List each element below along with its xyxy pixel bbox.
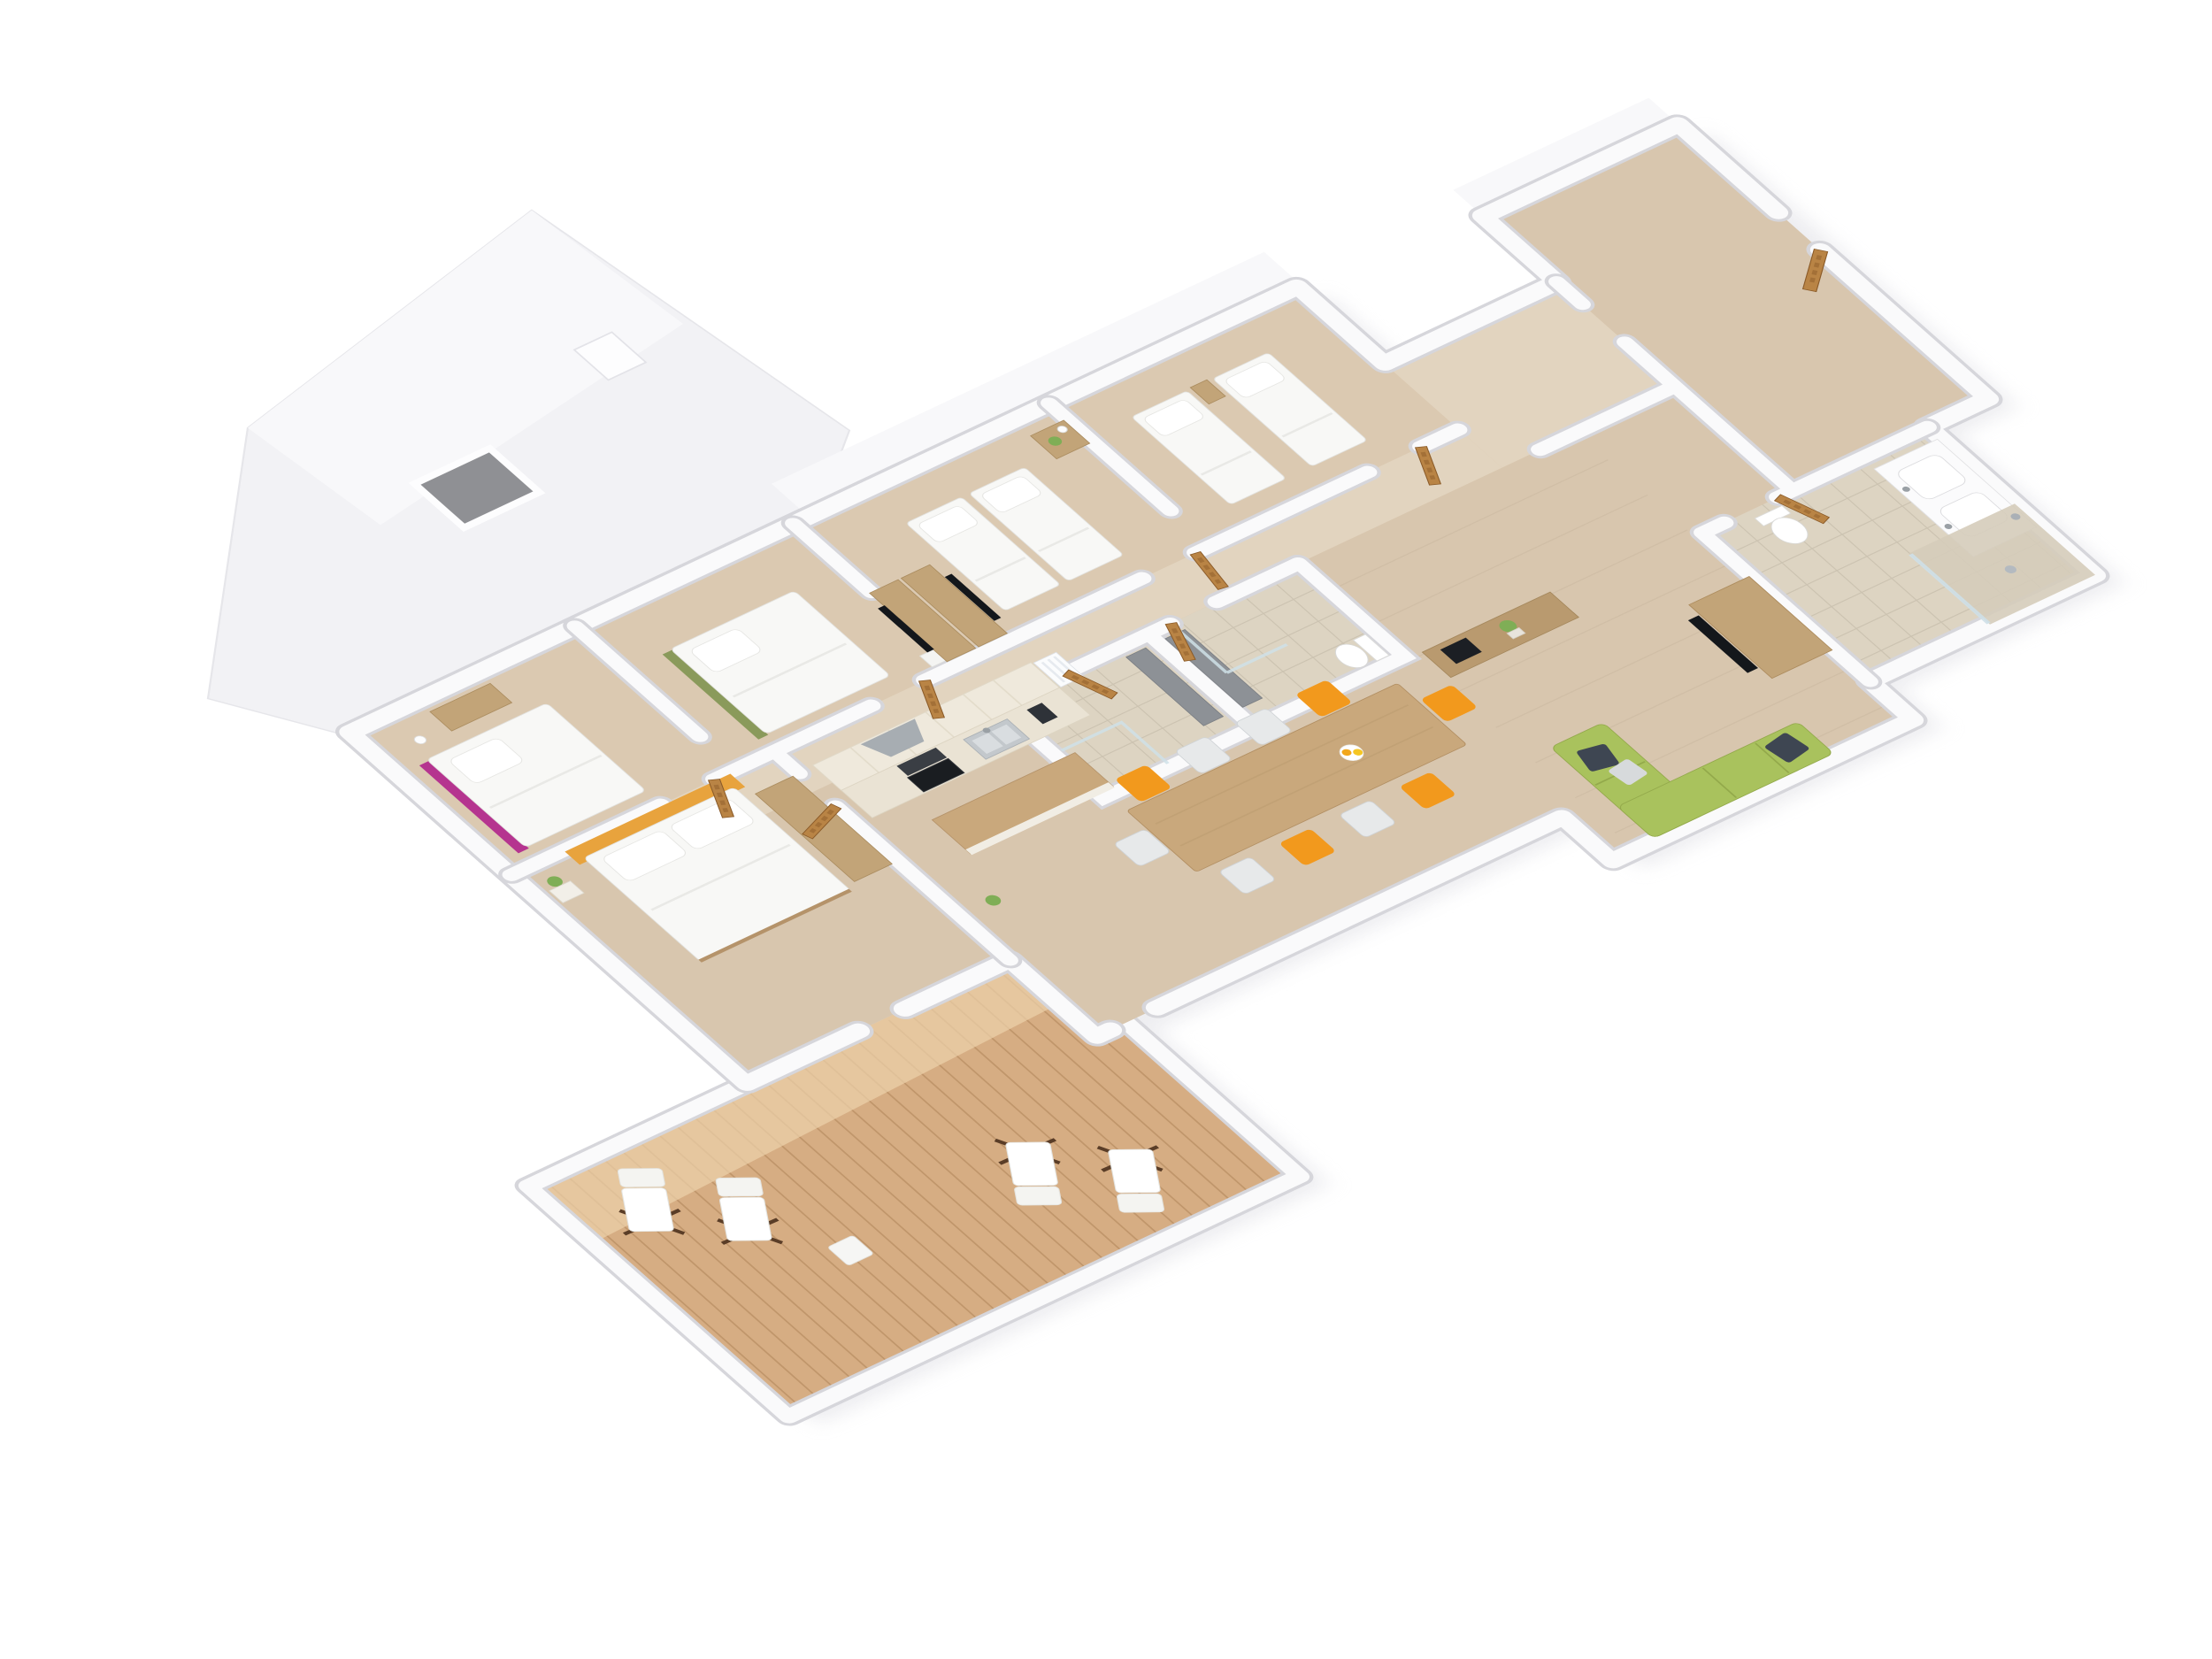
deck-chair-canvas bbox=[1005, 1142, 1058, 1186]
oblique-projection-group bbox=[0, 0, 2212, 1431]
deck-chair-backrest bbox=[1014, 1187, 1062, 1205]
deck-chair-canvas bbox=[719, 1197, 772, 1240]
deck-chair-backrest bbox=[716, 1178, 764, 1196]
deck-chair-canvas bbox=[621, 1188, 674, 1232]
deck-chair-backrest bbox=[618, 1168, 665, 1187]
deck-chair-backrest bbox=[1117, 1194, 1164, 1212]
deck-chair-canvas bbox=[1108, 1149, 1161, 1193]
floorplan-3d-render bbox=[0, 0, 2212, 1659]
floorplan-stage bbox=[0, 0, 2212, 1659]
